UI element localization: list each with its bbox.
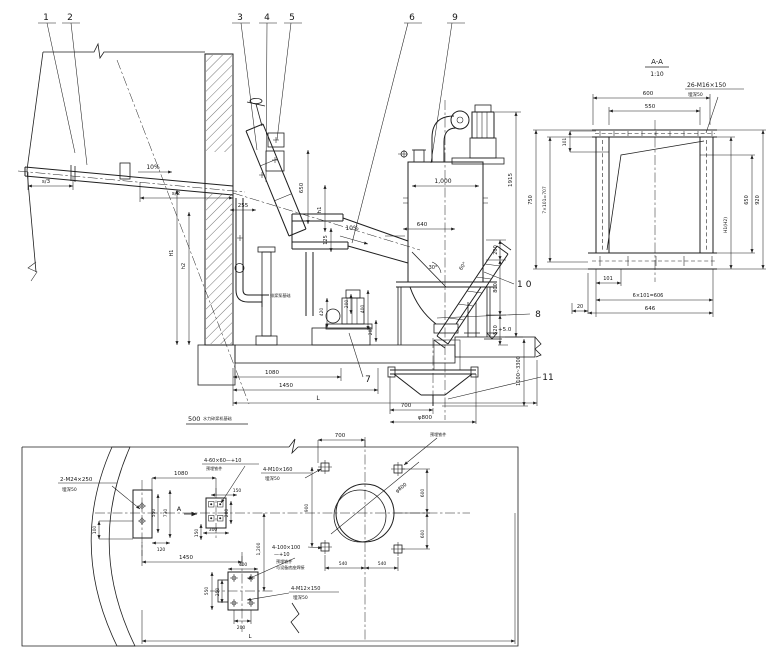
dim-700-plan: 700 bbox=[335, 433, 346, 439]
view-title-text: 水力碎浆机基础 bbox=[203, 415, 232, 421]
section-frame bbox=[588, 120, 717, 282]
callout-7: 7 bbox=[365, 375, 371, 385]
dim-L: L bbox=[316, 395, 320, 402]
dim-200-pump: 200 bbox=[344, 300, 350, 309]
dim-640: 640 bbox=[417, 222, 428, 228]
dim-h2: h2 bbox=[181, 263, 187, 269]
dim-540b: 540 bbox=[378, 561, 387, 567]
pump-pedestal bbox=[312, 328, 370, 345]
fan-scroll bbox=[451, 111, 469, 129]
valve-handwheel-icon bbox=[247, 98, 265, 126]
dim-s3: s/3 bbox=[42, 179, 51, 185]
dim-120: 120 bbox=[157, 547, 166, 553]
callout-3: 3 bbox=[237, 13, 243, 23]
drain-pipe bbox=[235, 198, 269, 307]
storage-tank bbox=[398, 100, 488, 420]
dim-550a: 550 bbox=[151, 509, 157, 518]
dim-400-pump: 400 bbox=[360, 305, 366, 314]
spec-m24-embed: 埋深50 bbox=[62, 486, 77, 493]
dim-L-plan: L bbox=[248, 634, 252, 640]
dim-900: 900 bbox=[304, 504, 310, 513]
blower bbox=[432, 105, 504, 164]
dim-101-top: 101 bbox=[562, 138, 568, 147]
spec-m24-label: 2-M24×250 bbox=[60, 477, 93, 483]
elevation-view: +5.0 s/3 s/2 10% 255 650 h1 125 10% 1,00… bbox=[18, 13, 554, 424]
dim-200-base: 200 bbox=[368, 327, 374, 336]
wall-structure bbox=[27, 44, 233, 345]
section-title-label: A-A bbox=[651, 58, 663, 66]
feed-pipe bbox=[18, 163, 245, 195]
dim-400-plan: 400 bbox=[239, 562, 248, 568]
dim-606: 6×101=606 bbox=[633, 293, 664, 299]
dim-1080: 1080 bbox=[265, 370, 279, 376]
anchor-plate-wall bbox=[133, 490, 152, 538]
dim-800-chain: 800 bbox=[493, 283, 499, 293]
section-marker-label: A bbox=[177, 505, 182, 513]
dim-200a: 200 bbox=[224, 509, 230, 518]
plan-break-line bbox=[291, 603, 299, 633]
dim-1450: 1450 bbox=[279, 383, 293, 389]
section-dimensions: 600 550 101 750 7×101=707 101 6×101=606 … bbox=[528, 91, 766, 317]
dim-250: 250 bbox=[215, 588, 221, 597]
dim-700: 700 bbox=[401, 403, 412, 409]
dim-707: 7×101=707 bbox=[542, 186, 548, 214]
callout-9: 9 bbox=[452, 13, 458, 23]
section-marker-a: A bbox=[177, 505, 197, 514]
pump-riser-pipe bbox=[306, 252, 313, 316]
blower-motor bbox=[472, 112, 494, 138]
dim-1915: 1915 bbox=[508, 173, 514, 187]
callout-1: 1 bbox=[43, 13, 49, 23]
embed-note-top: 预埋铁件 bbox=[404, 431, 446, 465]
dim-1100-3300: 1100~3300 bbox=[516, 356, 522, 386]
dim-60deg: 60° bbox=[458, 261, 468, 272]
dim-phi800: φ800 bbox=[418, 415, 433, 421]
spec-100-label: 4-100×100 bbox=[272, 545, 300, 551]
dim-730: 730 bbox=[163, 509, 169, 518]
dim-1200: 1,200 bbox=[256, 542, 262, 555]
callout-8: 8 bbox=[535, 310, 541, 320]
spec-m10-embed: 埋深50 bbox=[265, 475, 280, 482]
dim-125: 125 bbox=[323, 235, 329, 245]
dim-slope-pipe: 10% bbox=[146, 164, 160, 171]
section-scale-label: 1:10 bbox=[650, 71, 664, 78]
dim-H1: H1 bbox=[169, 250, 175, 257]
callout-10: 10 bbox=[517, 280, 534, 290]
bolt-spec-note: 26-M16×150 埋深50 bbox=[685, 82, 744, 133]
dim-phi800-plan: φ800 bbox=[394, 482, 408, 495]
callout-6: 6 bbox=[409, 13, 415, 23]
conveyor-sleeve bbox=[434, 340, 460, 370]
plate1-dimensions: 550 730 100 120 bbox=[92, 490, 170, 553]
wall-hatch-upper bbox=[206, 55, 232, 152]
embed-note-label: 预埋铁件 bbox=[430, 431, 446, 437]
callouts: 1 2 3 4 5 6 9 7 8 10 11 bbox=[38, 13, 554, 399]
dim-520-chain: 520 bbox=[493, 325, 499, 335]
spec-m10-label: 4-M10×160 bbox=[263, 467, 292, 473]
view-title-number: 500 bbox=[188, 415, 200, 423]
engineering-drawing: +5.0 s/3 s/2 10% 255 650 h1 125 10% 1,00… bbox=[0, 0, 767, 651]
callout-11: 11 bbox=[542, 373, 553, 383]
dim-h1: h1 bbox=[317, 207, 323, 214]
dim-650-sec: 650 bbox=[744, 195, 750, 205]
pump-note: 排浆泵基础 bbox=[270, 292, 290, 298]
plate2-dimensions: 150 200 300 150 bbox=[194, 488, 241, 540]
callout-5: 5 bbox=[289, 13, 295, 23]
spec-6060-note: 预埋铁件 bbox=[206, 465, 222, 471]
dim-1000: 1,000 bbox=[434, 178, 451, 185]
dim-300: 300 bbox=[209, 527, 218, 533]
callout-4: 4 bbox=[264, 13, 270, 23]
spec-6060-label: 4-60×60—+10 bbox=[204, 458, 241, 464]
bolt-spec: 26-M16×150 bbox=[687, 82, 726, 89]
plan-curved-wall bbox=[91, 447, 135, 646]
slurry-pump bbox=[312, 290, 372, 345]
plan-view: 550 730 100 120 2-M24×250 埋深50 1080 150 … bbox=[22, 431, 518, 646]
dim-920: 920 bbox=[755, 195, 761, 205]
dim-150b: 150 bbox=[194, 529, 200, 538]
spec-m12-label: 4-M12×150 bbox=[291, 586, 320, 592]
callout-2: 2 bbox=[67, 13, 73, 23]
dim-540a: 540 bbox=[339, 561, 348, 567]
elevation-dimensions: s/3 s/2 10% 255 650 h1 125 10% 1,000 640… bbox=[28, 112, 537, 424]
dim-100: 100 bbox=[92, 526, 98, 535]
dim-650: 650 bbox=[299, 182, 305, 193]
dim-600a: 600 bbox=[420, 489, 426, 498]
dim-750: 750 bbox=[528, 195, 534, 205]
pump-casing bbox=[326, 309, 340, 323]
inclined-chute bbox=[237, 98, 306, 241]
spec-100-note2: 与设备底座焊接 bbox=[276, 564, 305, 570]
dim-550b: 550 bbox=[204, 587, 210, 596]
tank-opening-circle: φ800 bbox=[331, 462, 419, 542]
spec-m12: 4-M12×150 埋深50 bbox=[247, 586, 339, 601]
dim-1450-plan: 1450 bbox=[179, 555, 193, 561]
spec-6060: 4-60×60—+10 预埋铁件 bbox=[202, 458, 259, 503]
spec-100-label2: —+10 bbox=[274, 552, 290, 558]
section-aa-view: A-A 1:10 26-M16×150 埋深50 600 550 101 750… bbox=[528, 58, 766, 317]
dim-600b: 600 bbox=[420, 530, 426, 539]
dim-slope-chute: 10% bbox=[345, 225, 359, 232]
spec-m12-embed: 埋深50 bbox=[293, 594, 308, 601]
transfer-chute bbox=[233, 193, 420, 263]
dim-1080-plan: 1080 bbox=[174, 471, 188, 477]
dim-646: 646 bbox=[645, 306, 656, 312]
dim-420: 420 bbox=[319, 308, 325, 317]
wall-hatch-lower bbox=[206, 194, 232, 344]
dim-101-bot: 101 bbox=[603, 276, 613, 282]
dim-550: 550 bbox=[645, 104, 656, 110]
dim-s2: s/2 bbox=[172, 191, 180, 197]
dim-30deg: 30° bbox=[429, 265, 438, 271]
dim-200-chain: 200 bbox=[493, 245, 499, 255]
view-title: 500 水力碎浆机基础 bbox=[186, 415, 248, 424]
dim-600: 600 bbox=[643, 91, 654, 97]
dim-20: 20 bbox=[577, 304, 583, 310]
drawing-sheet: +5.0 s/3 s/2 10% 255 650 h1 125 10% 1,00… bbox=[0, 0, 767, 651]
dim-150a: 150 bbox=[233, 488, 242, 494]
section-title: A-A 1:10 bbox=[645, 58, 669, 78]
discharge-hopper bbox=[396, 282, 497, 345]
dim-255: 255 bbox=[238, 203, 249, 209]
dim-H1H2: H1(H2) bbox=[723, 217, 729, 233]
dim-200b: 200 bbox=[237, 625, 246, 631]
bolt-embed: 埋深50 bbox=[688, 91, 703, 98]
